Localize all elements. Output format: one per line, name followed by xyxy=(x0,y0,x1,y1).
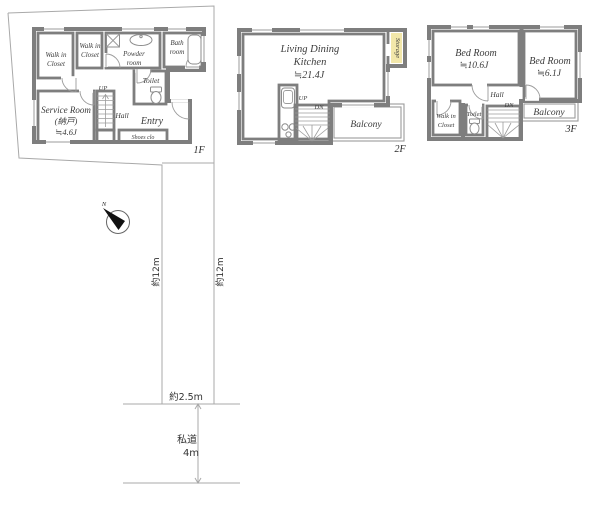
f1-service-label-2: (納戸) xyxy=(55,116,78,126)
dim-right-label: 約12m xyxy=(214,257,226,286)
floor3-plan: Bed Room ≒10.6J Bed Room ≒6.1J Hall DN W… xyxy=(427,25,583,140)
f1-bathtub-icon xyxy=(188,35,201,64)
floorplan-sheet: 約12m 約12m 約2.5m 私道 4m N xyxy=(0,0,600,512)
f1-washer-pan-icon xyxy=(107,34,120,47)
f2-up-label: UP xyxy=(299,95,308,102)
f1-floor-label: 1F xyxy=(193,145,205,156)
f2-storage-label: Storage xyxy=(394,38,401,58)
f3-bed2-label-1: Bed Room xyxy=(529,56,570,67)
dim-left-label: 約12m xyxy=(150,257,162,286)
f1-bath-label-2: room xyxy=(170,48,185,56)
f2-ldk-label-1: Living Dining xyxy=(280,44,340,55)
f2-floor-label: 2F xyxy=(394,144,406,155)
f1-wic1-label-1: Walk in xyxy=(46,51,67,59)
north-label: N xyxy=(101,201,107,208)
f3-bed1-label-1: Bed Room xyxy=(455,48,496,59)
f1-wic2-label-1: Walk in xyxy=(80,42,101,50)
compass-icon: N xyxy=(101,201,130,234)
f1-powder-label-1: Powder xyxy=(122,50,145,58)
f3-bed1-label-2: ≒10.6J xyxy=(460,61,490,71)
f2-dn-label: DN xyxy=(313,104,324,111)
f3-staircase xyxy=(487,106,520,139)
f3-wic-label-1: Walk in xyxy=(436,113,455,120)
f1-wic1-label-2: Closet xyxy=(47,60,66,68)
f3-toilet-icon xyxy=(470,119,480,134)
f1-toilet-icon xyxy=(151,87,162,104)
f3-dn-label: DN xyxy=(503,102,514,109)
f1-service-label-3: ≒4.6J xyxy=(55,127,78,137)
f1-hall-label: Hall xyxy=(114,111,128,120)
f1-toilet-label: Toilet xyxy=(143,76,161,85)
dim-front-label: 約2.5m xyxy=(169,391,203,403)
road-name-label: 私道 xyxy=(177,433,197,446)
f2-staircase xyxy=(295,105,330,142)
floorplan-canvas: 約12m 約12m 約2.5m 私道 4m N xyxy=(0,0,600,512)
road-width-label: 4m xyxy=(183,448,199,459)
f2-balcony-label: Balcony xyxy=(350,120,382,130)
f1-entry-label: Entry xyxy=(140,116,164,127)
f1-up-label: UP xyxy=(99,85,108,92)
f2-ldk-label-3: ≒21.4J xyxy=(294,70,325,81)
f3-floor-label: 3F xyxy=(564,124,577,135)
f2-storage-door-gap xyxy=(386,44,390,56)
f3-balcony-label: Balcony xyxy=(533,108,565,118)
f1-bath-label-1: Bath xyxy=(170,39,184,47)
f3-toilet-label: Toilet xyxy=(467,111,482,118)
f3-wic-label-2: Closet xyxy=(438,122,455,129)
f3-hall-label: Hall xyxy=(489,90,503,99)
f1-stair-treads xyxy=(97,95,114,128)
f1-powder-label-2: room xyxy=(127,59,142,67)
f1-service-label-1: Service Room xyxy=(41,105,91,115)
floor2-plan: Living Dining Kitchen ≒21.4J Storage UP … xyxy=(237,28,407,156)
f3-bed2-label-2: ≒6.1J xyxy=(537,69,562,79)
f2-ldk-label-2: Kitchen xyxy=(293,57,327,68)
f1-shoes-label: Shoes clo xyxy=(132,135,155,141)
floor1-plan: Walk in Closet Walk in Closet Powder roo… xyxy=(32,27,207,157)
f1-vanity-sink-icon xyxy=(130,35,152,46)
f1-wic2-label-2: Closet xyxy=(81,51,100,59)
